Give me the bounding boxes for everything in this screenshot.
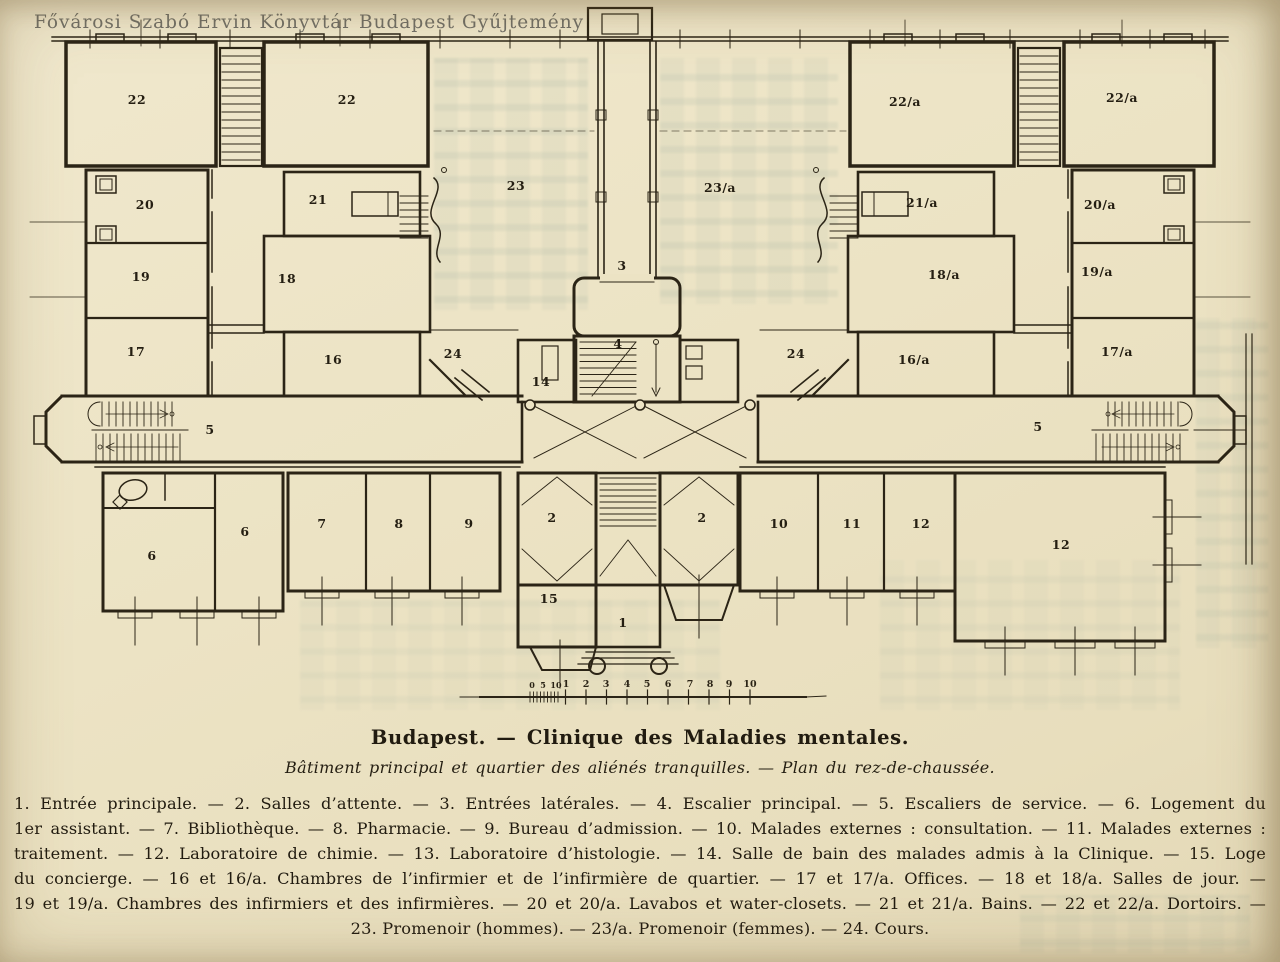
scale-minor-label: 5 — [540, 680, 546, 690]
stair-shafts — [220, 48, 1060, 166]
room-label-9: 9 — [464, 516, 473, 531]
room-label-14: 14 — [532, 374, 550, 389]
room-14-bain — [518, 340, 576, 402]
caption-block: Budapest. — Clinique des Maladies mental… — [0, 726, 1280, 941]
room-label-16: 16 — [324, 352, 342, 367]
room-14a-closets — [680, 340, 738, 402]
room-label-16-a: 16/a — [898, 352, 930, 367]
floor-plan: 222222/a22/a202121/a20/a191818/a19/a1716… — [0, 0, 1280, 712]
room-label-2: 2 — [547, 510, 556, 525]
room-label-21: 21 — [309, 192, 327, 207]
scale-major-label: 10 — [743, 679, 757, 690]
central-vestibule-hall — [522, 400, 758, 462]
left-door-knob — [442, 168, 447, 173]
room-label-8: 8 — [394, 516, 403, 531]
room-label-11: 11 — [843, 516, 861, 531]
room-6-block — [103, 473, 283, 611]
room-1-entree — [596, 585, 660, 647]
room-label-21-a: 21/a — [906, 195, 938, 210]
legend-line-4: du concierge. — 16 et 16/a. Chambres de … — [14, 866, 1266, 891]
room-12-laboratoire — [955, 473, 1165, 641]
legend-line-1: 1. Entrée principale. — 2. Salles d’atte… — [14, 791, 1266, 816]
room-label-7: 7 — [317, 516, 326, 531]
room-label-5: 5 — [1033, 419, 1042, 434]
scale-major-label: 2 — [583, 679, 590, 690]
window-axis-ticks — [30, 20, 1250, 297]
left-wc-fixtures — [96, 176, 116, 243]
room-label-12: 12 — [1052, 537, 1070, 552]
scanned-plate: { "page": { "watermark": "Fővárosi Szabó… — [0, 0, 1280, 962]
right-door-knob — [814, 168, 819, 173]
room-label-24: 24 — [444, 346, 462, 361]
scale-bar — [460, 690, 826, 704]
central-walkway — [596, 42, 658, 278]
plate-subtitle: Bâtiment principal et quartier des alién… — [0, 758, 1280, 777]
library-watermark: Fővárosi Szabó Ervin Könyvtár Budapest G… — [34, 12, 584, 33]
room-label-17-a: 17/a — [1101, 344, 1133, 359]
room-label-19: 19 — [132, 269, 150, 284]
room-label-6: 6 — [147, 548, 156, 563]
scale-major-label: 1 — [563, 679, 570, 690]
legend: 1. Entrée principale. — 2. Salles d’atte… — [14, 791, 1266, 941]
room-label-4: 4 — [613, 336, 622, 351]
room-label-17: 17 — [127, 344, 145, 359]
room-label-23-a: 23/a — [704, 180, 736, 195]
room-label-18: 18 — [278, 271, 296, 286]
room-label-18-a: 18/a — [928, 267, 960, 282]
room-label-22: 22 — [128, 92, 146, 107]
plate-title: Budapest. — Clinique des Maladies mental… — [0, 726, 1280, 749]
right-wc-fixtures — [1164, 176, 1184, 243]
scale-bar-labels: 051012345678910 — [529, 679, 757, 690]
legend-line-5: 19 et 19/a. Chambres des infirmiers et d… — [14, 891, 1266, 916]
room-label-22-a: 22/a — [889, 94, 921, 109]
scale-major-label: 8 — [707, 679, 714, 690]
legend-line-6: 23. Promenoir (hommes). — 23/a. Promenoi… — [14, 916, 1266, 941]
room-label-1: 1 — [618, 615, 627, 630]
room-label-24: 24 — [787, 346, 805, 361]
right-serpentine-wall — [818, 178, 827, 262]
rooms-7-8-9 — [288, 473, 500, 591]
scale-minor-label: 10 — [550, 680, 562, 690]
room-label-15: 15 — [540, 591, 558, 606]
scale-major-label: 7 — [687, 679, 694, 690]
scale-major-label: 4 — [624, 679, 631, 690]
room-label-3: 3 — [617, 258, 626, 273]
legend-line-2: 1er assistant. — 7. Bibliothèque. — 8. P… — [14, 816, 1266, 841]
scale-major-label: 9 — [726, 679, 733, 690]
room-label-20-a: 20/a — [1084, 197, 1116, 212]
room-4-escalier-principal — [574, 336, 680, 402]
right-garden-wall — [1194, 334, 1252, 564]
room-label-5: 5 — [205, 422, 214, 437]
room-label-22-a: 22/a — [1106, 90, 1138, 105]
room-label-19-a: 19/a — [1081, 264, 1113, 279]
scale-major-label: 6 — [665, 679, 672, 690]
room-3-entree-laterale — [574, 278, 680, 336]
left-serpentine-wall — [431, 178, 440, 262]
scale-major-label: 5 — [644, 679, 651, 690]
gate-pavilion — [588, 8, 652, 40]
room-label-2: 2 — [697, 510, 706, 525]
room-label-10: 10 — [770, 516, 788, 531]
side-porches — [530, 575, 734, 688]
rooms-10-11-12 — [740, 473, 955, 591]
floor-plan-drawing: 222222/a22/a202121/a20/a191818/a19/a1716… — [0, 0, 1280, 712]
scale-minor-label: 0 — [529, 680, 535, 690]
legend-line-3: traitement. — 12. Laboratoire de chimie.… — [14, 841, 1266, 866]
corner-porches — [430, 360, 848, 400]
room-label-22: 22 — [338, 92, 356, 107]
room-label-6: 6 — [240, 524, 249, 539]
room-label-23: 23 — [507, 178, 525, 193]
room-label-12: 12 — [912, 516, 930, 531]
room-label-20: 20 — [136, 197, 154, 212]
scale-major-label: 3 — [603, 679, 610, 690]
